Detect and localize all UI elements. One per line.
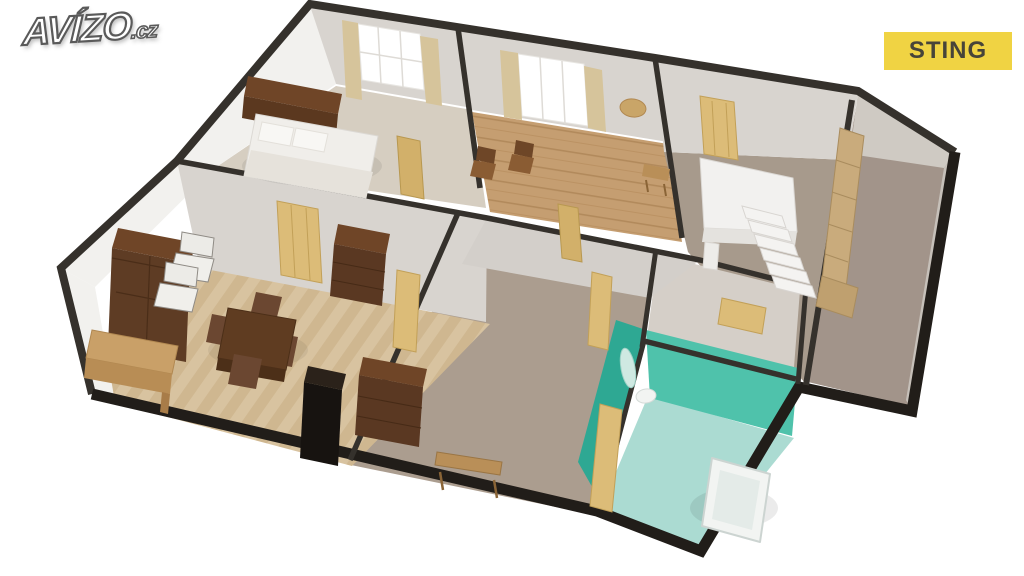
living-room-door xyxy=(277,201,322,283)
middle-room-west-door xyxy=(393,270,420,352)
hall-spine-door xyxy=(558,204,582,262)
avizo-logo-suffix: .cz xyxy=(130,17,157,44)
floorplan-render: AVÍZO.cz STING xyxy=(0,0,1024,576)
dining-chair xyxy=(228,354,262,389)
floorplan-svg xyxy=(0,0,1024,576)
avizo-logo: AVÍZO.cz xyxy=(22,4,158,55)
avizo-logo-text: AVÍZO xyxy=(22,5,132,54)
bedroom-door xyxy=(397,136,424,199)
stair-landing-leg xyxy=(703,242,719,270)
chest-front xyxy=(330,244,386,306)
middle-room-east-door xyxy=(588,272,612,350)
hall-entry-door xyxy=(700,96,738,160)
stove-front xyxy=(300,382,342,466)
sting-badge: STING xyxy=(884,32,1012,70)
second-room-window xyxy=(518,54,588,126)
sting-badge-label: STING xyxy=(909,37,987,65)
dresser-front xyxy=(355,375,423,447)
